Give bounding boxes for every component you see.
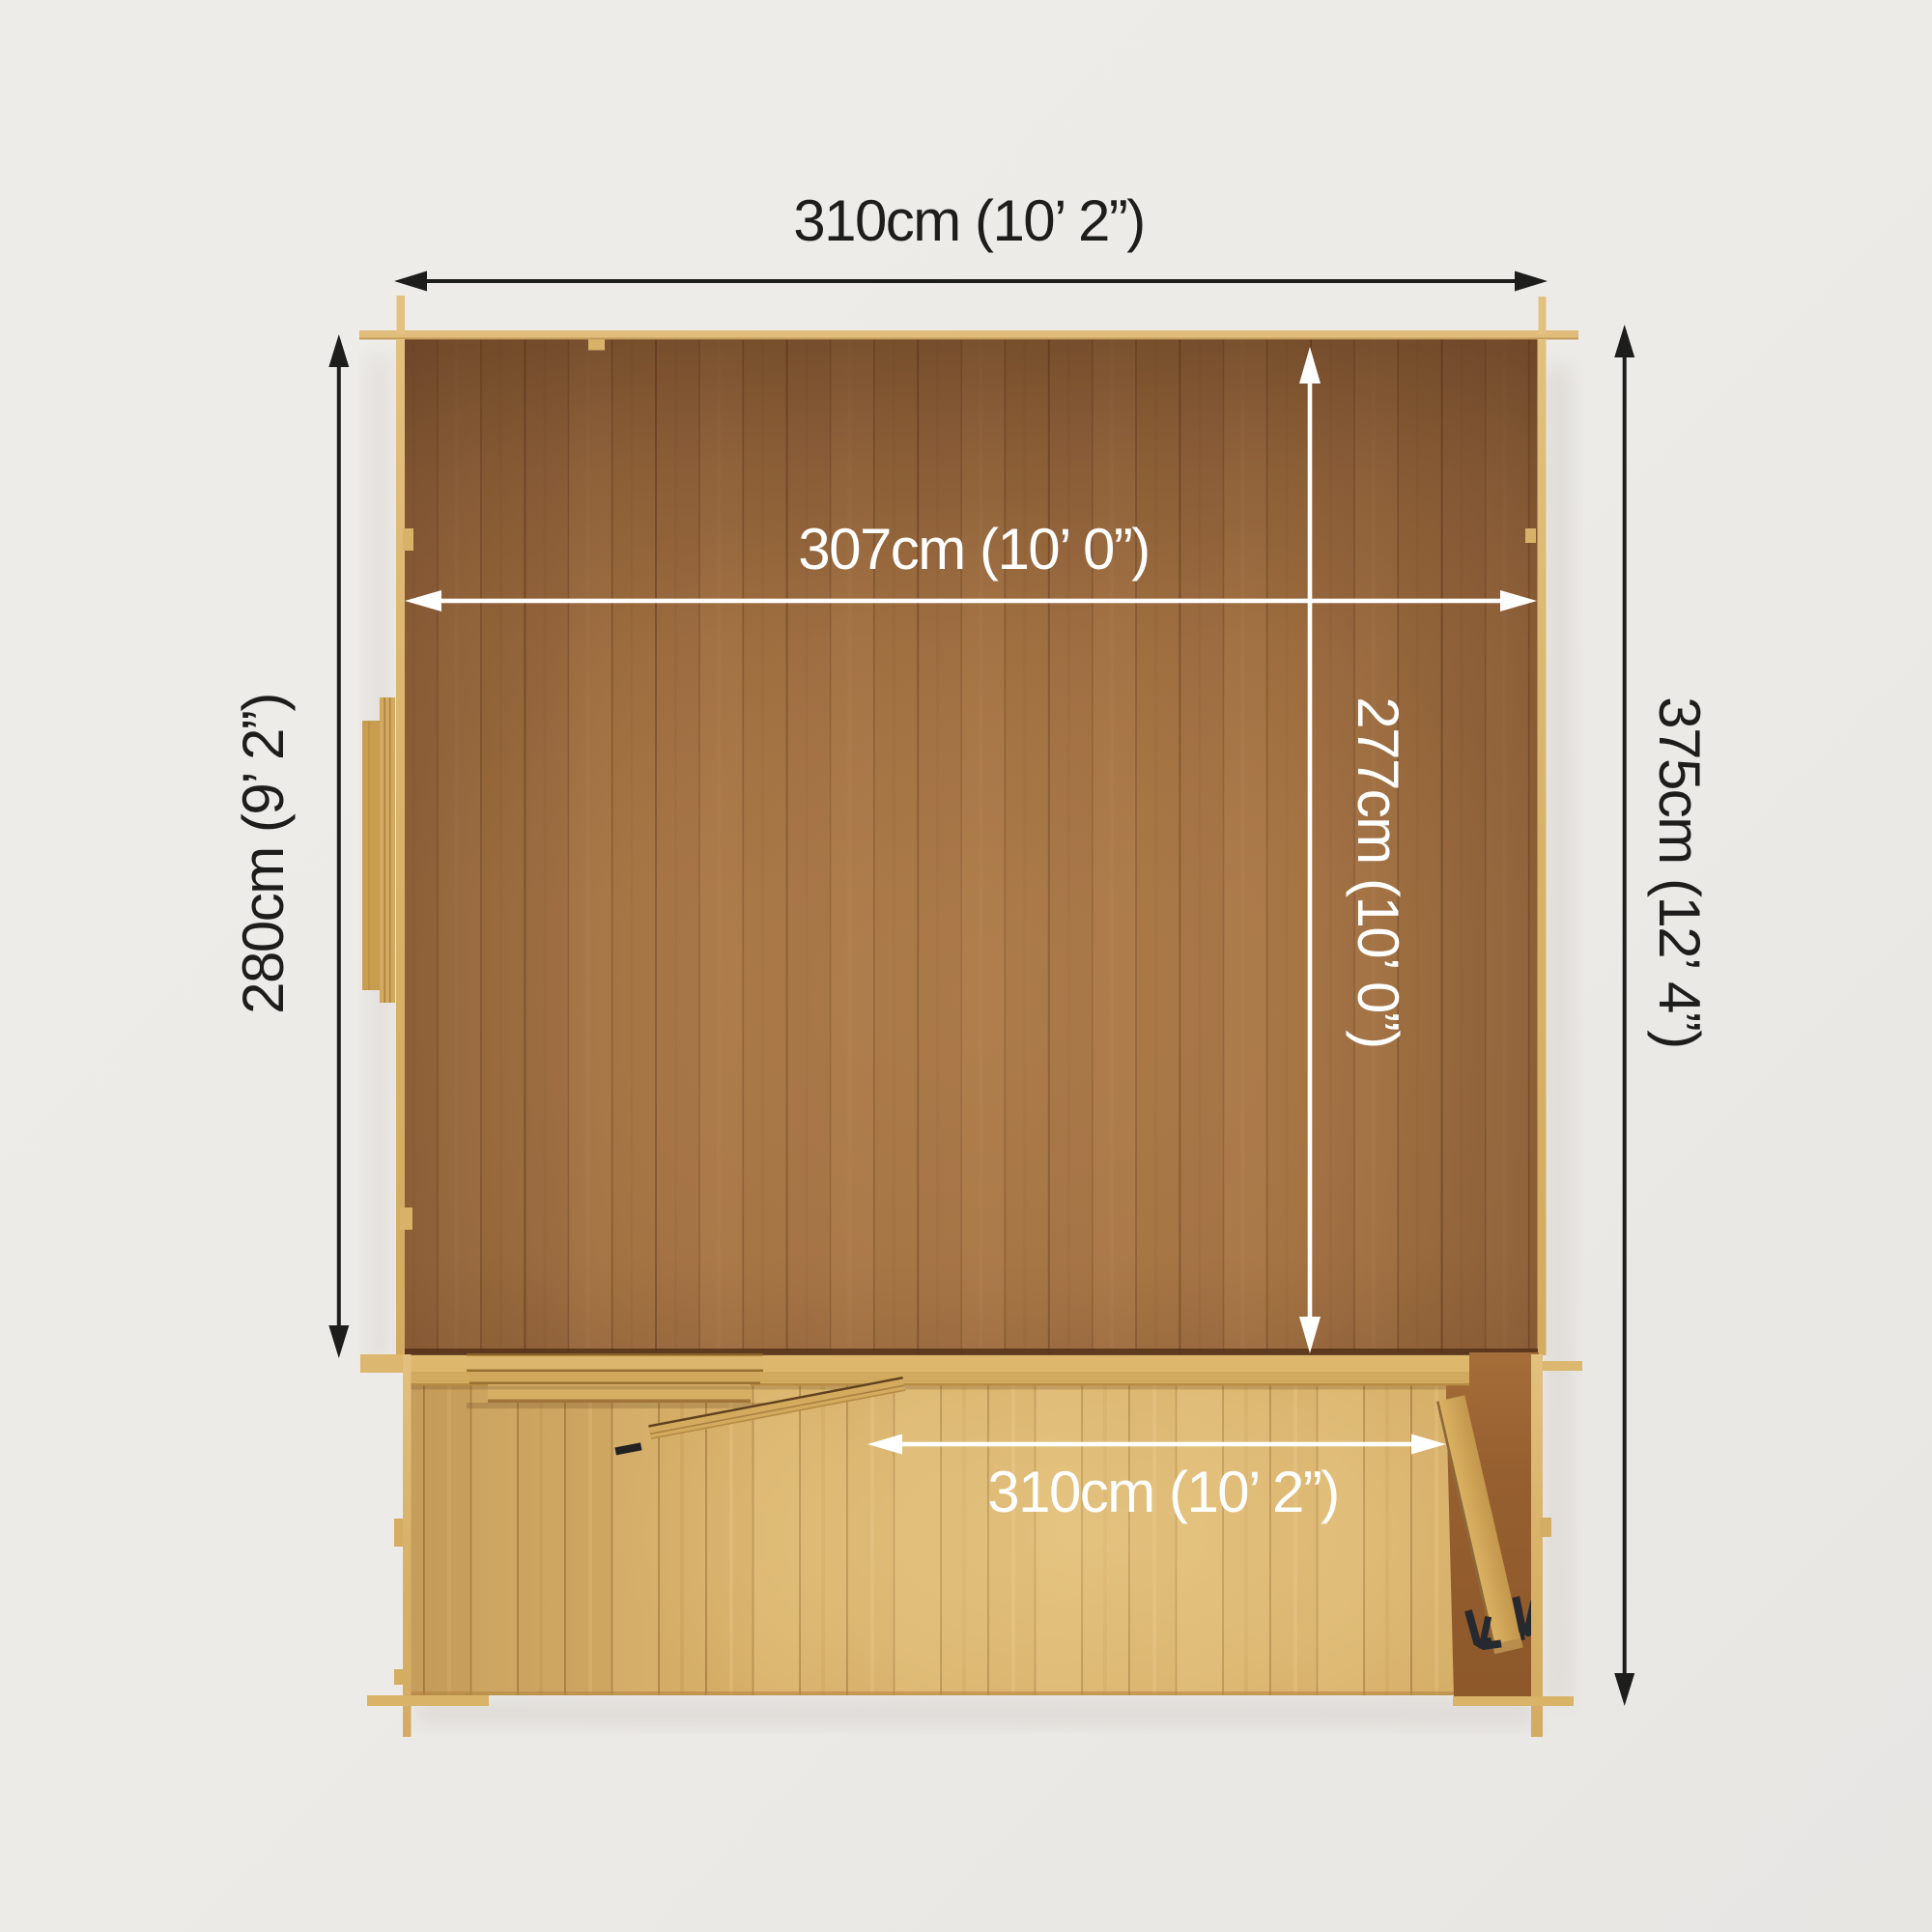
svg-text:280cm (9’ 2”): 280cm (9’ 2”) [231,694,296,1014]
svg-text:375cm (12’ 4”): 375cm (12’ 4”) [1647,696,1712,1048]
svg-text:310cm (10’ 2”): 310cm (10’ 2”) [793,188,1145,253]
svg-text:310cm (10’ 2”): 310cm (10’ 2”) [987,1460,1339,1524]
svg-text:307cm (10’ 0”): 307cm (10’ 0”) [798,517,1150,582]
svg-text:277cm (10’ 0”): 277cm (10’ 0”) [1346,696,1410,1048]
